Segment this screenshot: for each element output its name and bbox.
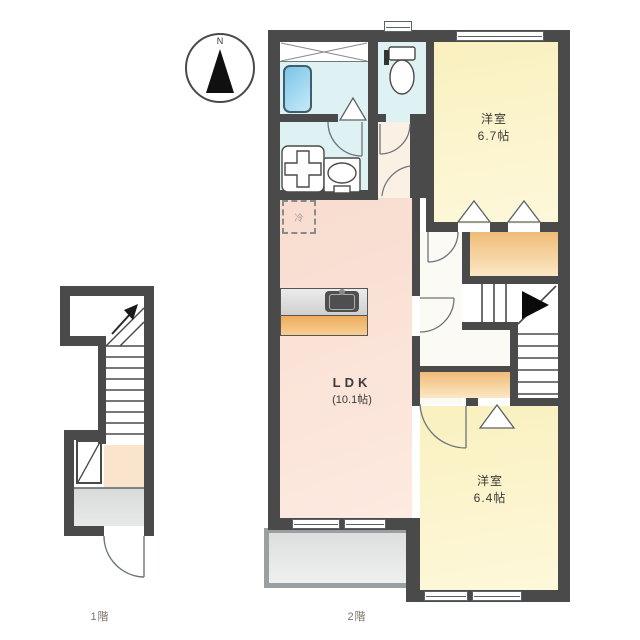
bedroom-south-door — [420, 404, 466, 448]
stairs-lower — [518, 334, 558, 394]
closet-south-door-marker — [480, 405, 514, 428]
closet-north-door-markers — [458, 201, 540, 222]
shoe-cabinet-diagonal — [78, 442, 100, 482]
bedroom-south-name: 洋室 — [450, 473, 530, 490]
washroom-door — [328, 122, 362, 156]
floor-2f-label: 2階 — [335, 610, 379, 626]
bedroom-north-door — [428, 232, 458, 262]
ldk-label: LDK (10.1帖) — [312, 374, 392, 409]
toilet-icon — [384, 47, 415, 94]
bath-door-marker — [340, 98, 366, 120]
bedroom-north-label: 洋室 6.7帖 — [454, 111, 534, 146]
stairs-up-arrow-1f — [112, 304, 138, 334]
entrance-door — [104, 536, 144, 577]
floor-plan-canvas: N 冷 — [0, 0, 640, 640]
toilet-door — [380, 124, 410, 154]
floor-1f-label: 1階 — [78, 610, 122, 626]
storage-hatch-lines — [281, 43, 367, 61]
corridor-door — [382, 166, 410, 196]
washing-machine-pan-icon — [282, 146, 324, 192]
bedroom-north-name: 洋室 — [454, 111, 534, 128]
stairs-1f — [106, 308, 144, 434]
ldk-hall-door — [420, 298, 454, 332]
bedroom-south-size: 6.4帖 — [450, 490, 530, 507]
plan-linework — [0, 0, 640, 640]
ldk-size: (10.1帖) — [312, 393, 392, 409]
ldk-name: LDK — [312, 374, 392, 393]
bedroom-south-label: 洋室 6.4帖 — [450, 473, 530, 508]
washbasin-icon — [324, 158, 360, 193]
bedroom-north-size: 6.7帖 — [454, 128, 534, 145]
stairs-direction-arrow — [522, 291, 549, 319]
